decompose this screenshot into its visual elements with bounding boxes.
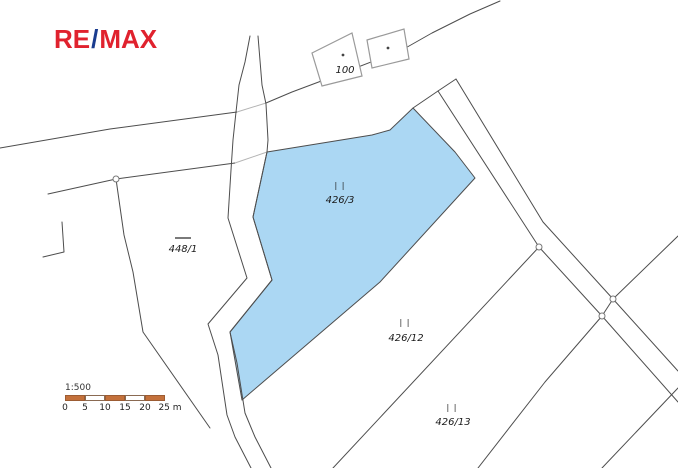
scale-tick-label: 10	[95, 403, 115, 413]
parcel-426-12-landuse-symbol: | |	[400, 318, 411, 327]
survey-point-marker	[113, 176, 119, 182]
corner-bracket-line	[43, 222, 64, 257]
scale-bar-segments	[65, 395, 165, 401]
scale-bar-ticks: 0 5 10 15 20 25 m	[55, 403, 185, 413]
scale-bar-segment	[65, 395, 85, 401]
scale-ratio-label: 1:500	[65, 383, 185, 393]
parcel-448-1-label: 448/1	[169, 244, 198, 255]
parcel-426-12-label: 426/12	[388, 333, 423, 344]
road-line-upper-west	[0, 112, 237, 148]
road-gray-crossing-1	[237, 103, 266, 112]
map-scale-bar: 1:500 0 5 10 15 20 25 m	[55, 383, 185, 413]
parcel-426-3-label: 426/3	[326, 195, 355, 206]
survey-point-marker	[610, 296, 616, 302]
scale-bar-segment	[145, 395, 165, 401]
cadastral-map-page: { "logo": { "re": "RE", "slash": "/", "m…	[0, 0, 678, 468]
parcel-426-13-landuse-symbol: | |	[447, 403, 458, 412]
survey-point-marker	[599, 313, 605, 319]
road-gray-crossing-2	[235, 152, 267, 163]
survey-point-marker	[536, 244, 542, 250]
boundary-426-12-13-east	[613, 236, 678, 299]
building-100-point	[342, 54, 345, 57]
boundary-line-448-north	[48, 163, 235, 194]
footpath-left-line	[208, 36, 251, 468]
right-road-west-edge	[438, 91, 678, 402]
scale-tick-label: 5	[75, 403, 95, 413]
right-road-east-edge	[456, 79, 678, 371]
blue-corner-link-line	[413, 79, 456, 108]
boundary-road-crossing-south	[478, 299, 613, 468]
remax-logo-re: RE	[54, 24, 90, 54]
scale-bar-segment	[125, 395, 145, 401]
scale-bar-segment	[105, 395, 125, 401]
remax-logo-slash: /	[90, 24, 99, 54]
scale-tick-label: 20	[135, 403, 155, 413]
scale-tick-label: 15	[115, 403, 135, 413]
scale-bar-segment	[85, 395, 105, 401]
remax-logo-max: MAX	[99, 24, 157, 54]
scale-tick-label: 25 m	[155, 403, 185, 413]
bottom-right-corner-boundary	[602, 388, 678, 468]
remax-logo: RE/MAX	[54, 26, 157, 52]
building-100-outline	[312, 33, 362, 86]
building-100-label: 100	[335, 65, 354, 76]
building-adjacent-point	[387, 47, 390, 50]
parcel-426-13-label: 426/13	[435, 417, 470, 428]
scale-tick-label: 0	[55, 403, 75, 413]
parcel-426-3-landuse-symbol: | |	[335, 181, 346, 190]
